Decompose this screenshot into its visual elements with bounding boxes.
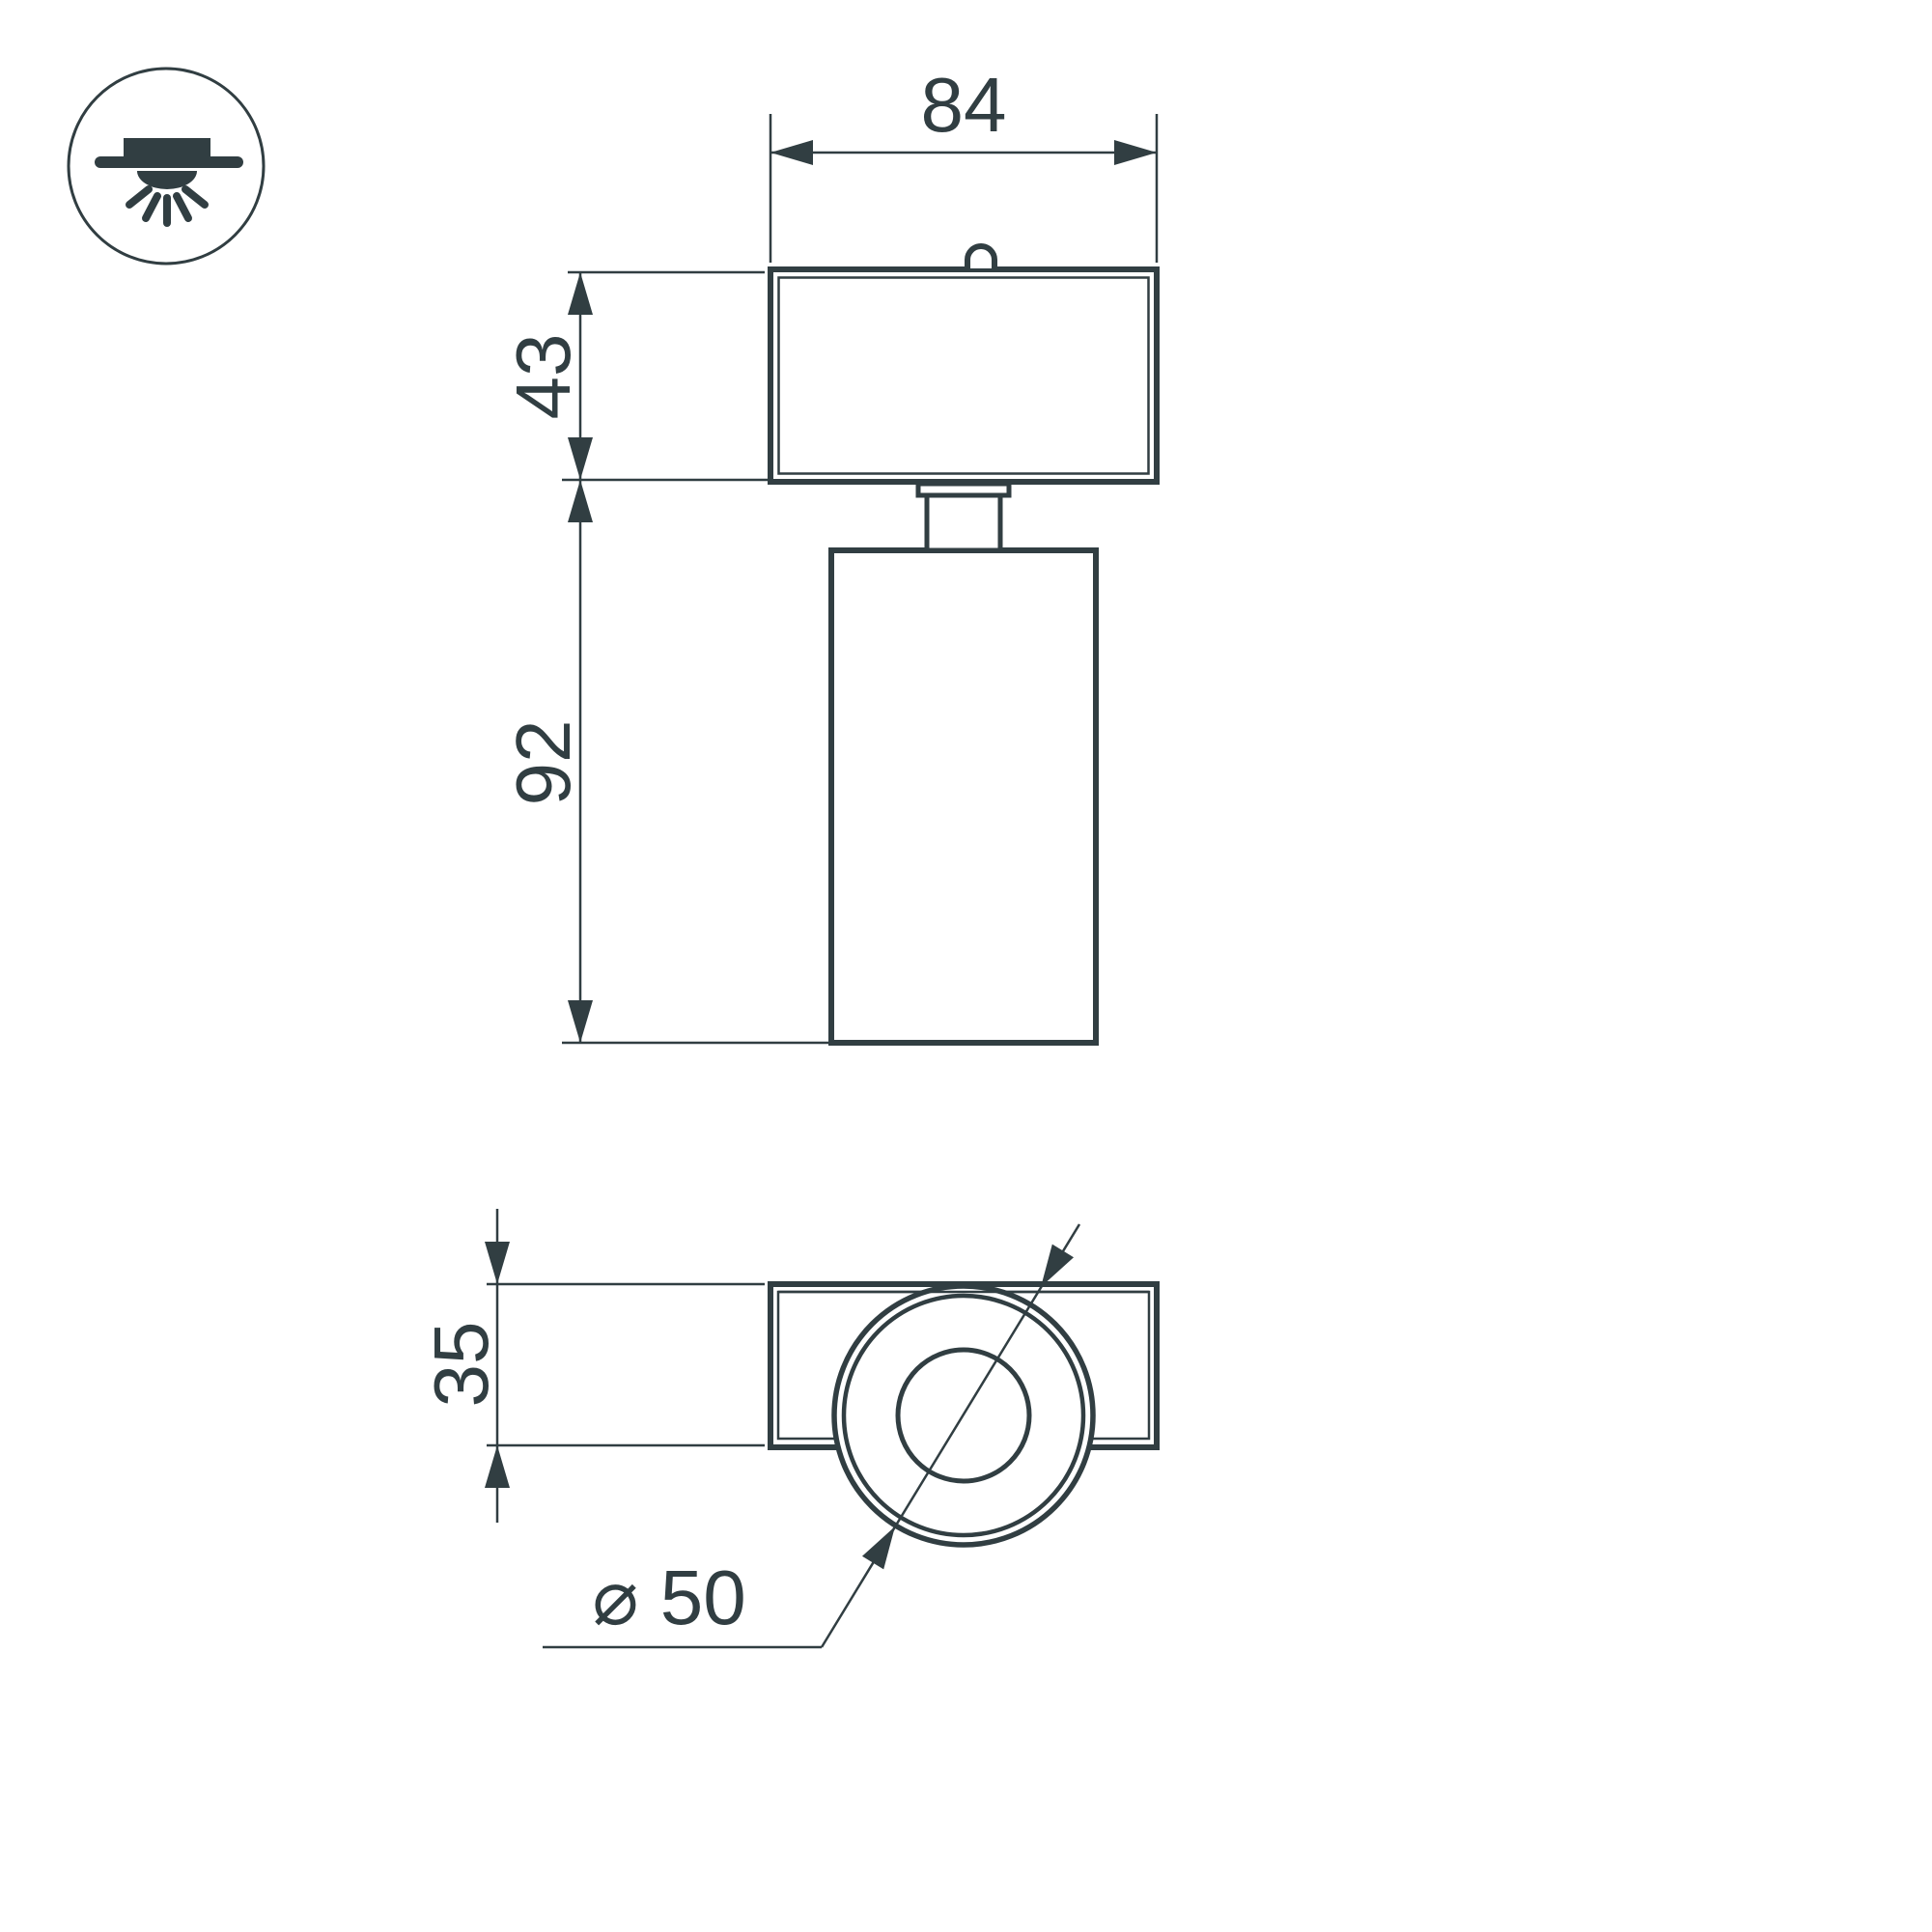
icon-fixture-box	[124, 138, 210, 157]
technical-drawing-canvas: 84 43 92	[0, 0, 1932, 1932]
drawing-root: 84 43 92	[69, 62, 1157, 1647]
arrowhead-up	[568, 272, 593, 315]
arrowhead-right	[1114, 140, 1157, 165]
light-ray	[185, 189, 205, 205]
front-view	[770, 246, 1157, 1043]
arrowhead-down	[568, 437, 593, 480]
light-ray	[177, 196, 188, 218]
top-knob	[967, 246, 994, 268]
ceiling-recessed-light-icon	[95, 138, 243, 189]
dim-label-base-depth: 35	[418, 1322, 504, 1408]
mount-box-outer	[770, 269, 1157, 482]
light-ray	[146, 196, 157, 218]
bottom-dimension-labels: 35 ⌀ 50	[418, 1322, 746, 1640]
lamp-body-cylinder	[831, 550, 1096, 1043]
arrowhead-left	[770, 140, 813, 165]
arrowhead-down	[485, 1242, 510, 1284]
stem-flange	[918, 484, 1009, 495]
arrowhead-up	[485, 1445, 510, 1488]
icon-light-rays	[129, 189, 205, 223]
arrowhead-up	[568, 480, 593, 522]
dim-label-width: 84	[921, 62, 1007, 148]
dim-label-head-height: 43	[500, 334, 586, 420]
arrowhead-down	[568, 1000, 593, 1043]
dim-label-body-height: 92	[500, 720, 586, 806]
light-ray	[129, 189, 149, 205]
dimension-drawing-page: 84 43 92	[0, 0, 1932, 1932]
icon-ceiling-bar	[95, 156, 243, 168]
dim-label-diameter: ⌀ 50	[592, 1554, 745, 1640]
mount-type-icon	[69, 69, 264, 264]
swivel-stem	[927, 495, 1000, 550]
